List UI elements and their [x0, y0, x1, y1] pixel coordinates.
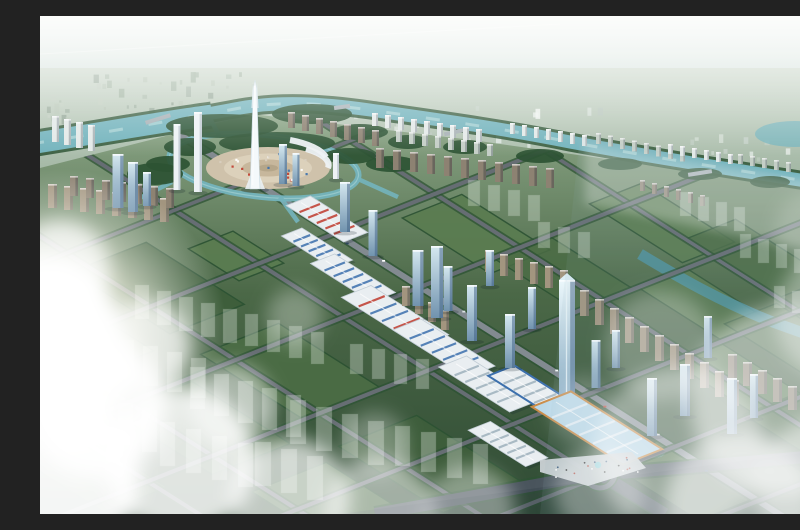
aerial-cityscape-render	[40, 16, 800, 514]
car	[462, 311, 465, 313]
car	[382, 260, 385, 262]
render-canvas	[40, 16, 800, 514]
